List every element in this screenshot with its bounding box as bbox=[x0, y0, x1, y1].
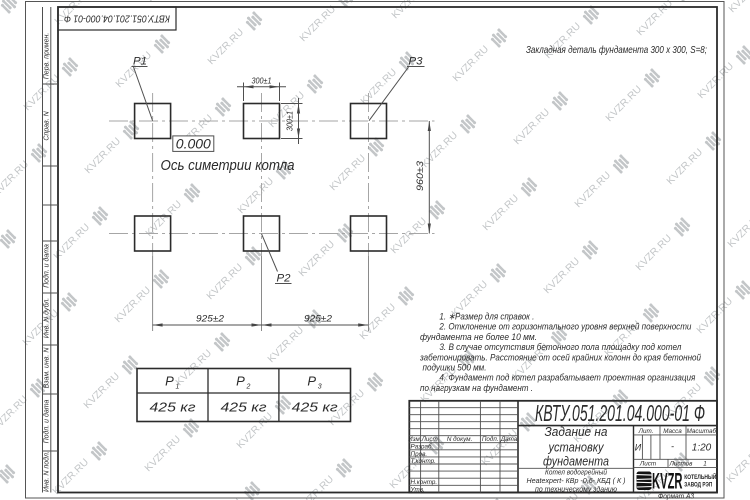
svg-text:2. Отклонение от горизонтальн: 2. Отклонение от горизонтального уровня … bbox=[439, 322, 692, 332]
svg-text:925±2: 925±2 bbox=[304, 314, 332, 324]
svg-text:4. Фундамент под котел разраб: 4. Фундамент под котел разрабатывает про… bbox=[439, 373, 695, 383]
svg-text:фундамента: фундамента bbox=[543, 455, 609, 469]
svg-text:0.000: 0.000 bbox=[176, 135, 211, 151]
svg-text:P: P bbox=[307, 374, 316, 389]
svg-text:И: И bbox=[635, 443, 642, 453]
svg-text:КОТЕЛЬНЫЙ: КОТЕЛЬНЫЙ bbox=[684, 472, 716, 481]
svg-text:по техническому зданию: по техническому зданию bbox=[535, 485, 618, 493]
svg-text:Heatexpert- КВр -0,6- КБД ( К: Heatexpert- КВр -0,6- КБД ( К ) bbox=[527, 478, 626, 485]
svg-text:Инв. N дубл.: Инв. N дубл. bbox=[43, 298, 51, 339]
svg-text:Лист: Лист bbox=[421, 436, 438, 443]
svg-text:Листов: Листов bbox=[669, 461, 694, 468]
svg-text:300±1: 300±1 bbox=[286, 111, 295, 131]
svg-text:Н.контр.: Н.контр. bbox=[411, 479, 438, 486]
svg-text:425 кг: 425 кг bbox=[221, 400, 268, 415]
svg-text:установку: установку bbox=[548, 441, 605, 455]
svg-text:N докум.: N докум. bbox=[447, 435, 472, 443]
svg-text:Разраб.: Разраб. bbox=[411, 443, 434, 451]
svg-text:Котел водогрейный: Котел водогрейный bbox=[545, 469, 607, 477]
svg-text:1: 1 bbox=[176, 384, 180, 391]
svg-text:Инв. N подл.: Инв. N подл. bbox=[43, 451, 51, 492]
svg-text:-: - bbox=[671, 442, 674, 452]
svg-text:Т.контр.: Т.контр. bbox=[411, 458, 436, 465]
svg-text:Масса: Масса bbox=[663, 428, 682, 435]
svg-text:1. ∗Размер для справок .: 1. ∗Размер для справок . bbox=[439, 312, 534, 322]
svg-text:Дата: Дата bbox=[500, 436, 518, 443]
svg-text:1: 1 bbox=[703, 461, 707, 468]
svg-text:Формат А3: Формат А3 bbox=[658, 493, 694, 500]
svg-text:1:20: 1:20 bbox=[692, 443, 712, 454]
svg-text:Утв.: Утв. bbox=[410, 486, 425, 493]
svg-text:забетонировать. Расстояние от: забетонировать. Расстояние от осей крайн… bbox=[419, 352, 701, 362]
svg-text:Лист: Лист bbox=[639, 461, 656, 468]
svg-text:Изм.: Изм. bbox=[408, 436, 421, 443]
svg-text:P1: P1 bbox=[133, 56, 147, 68]
svg-text:3: 3 bbox=[318, 384, 322, 391]
svg-text:425 кг: 425 кг bbox=[150, 400, 197, 415]
svg-text:Подп.: Подп. bbox=[482, 435, 499, 443]
svg-text:Задание на: Задание на bbox=[545, 425, 608, 439]
svg-text:425 кг: 425 кг bbox=[292, 400, 339, 415]
svg-text:Перв. примен.: Перв. примен. bbox=[44, 33, 51, 80]
svg-text:КВТУ.051.201.04.000-01 Ф: КВТУ.051.201.04.000-01 Ф bbox=[64, 13, 170, 25]
svg-text:P: P bbox=[236, 374, 245, 389]
svg-text:Подп. и дата: Подп. и дата bbox=[43, 244, 51, 288]
svg-text:2: 2 bbox=[246, 384, 251, 391]
svg-text:Ось симетрии котла: Ось симетрии котла bbox=[161, 158, 295, 174]
svg-text:по нагрузкам на фундамент .: по нагрузкам на фундамент . bbox=[420, 383, 533, 393]
svg-text:Масштаб: Масштаб bbox=[687, 427, 717, 435]
svg-text:Лит.: Лит. bbox=[638, 428, 654, 435]
svg-text:3. В случае отсутствия бетонн: 3. В случае отсутствия бетонного пола пл… bbox=[439, 342, 682, 352]
svg-text:960±3: 960±3 bbox=[415, 161, 425, 191]
svg-text:подушки 500 мм.: подушки 500 мм. bbox=[423, 363, 487, 373]
svg-text:Пров.: Пров. bbox=[411, 451, 428, 458]
svg-text:Подп. и дата: Подп. и дата bbox=[43, 399, 51, 443]
svg-text:ЗАВОД РЭП: ЗАВОД РЭП bbox=[684, 482, 712, 489]
svg-text:Закладная деталь фундамента 3: Закладная деталь фундамента 300 х 300, S… bbox=[526, 44, 707, 56]
svg-text:925±2: 925±2 bbox=[196, 314, 224, 324]
svg-text:фундамента не более 10 мм.: фундамента не более 10 мм. bbox=[420, 332, 537, 342]
svg-text:KVZR: KVZR bbox=[652, 469, 683, 494]
svg-text:P: P bbox=[165, 374, 174, 389]
svg-text:Справ. N: Справ. N bbox=[44, 110, 51, 140]
svg-text:Взам. инв. N: Взам. инв. N bbox=[44, 347, 51, 389]
svg-text:P2: P2 bbox=[277, 273, 291, 285]
svg-text:P3: P3 bbox=[409, 56, 424, 68]
svg-text:КВТУ.051.201.04.000-01 Ф: КВТУ.051.201.04.000-01 Ф bbox=[535, 400, 705, 426]
svg-text:300±1: 300±1 bbox=[252, 77, 272, 86]
